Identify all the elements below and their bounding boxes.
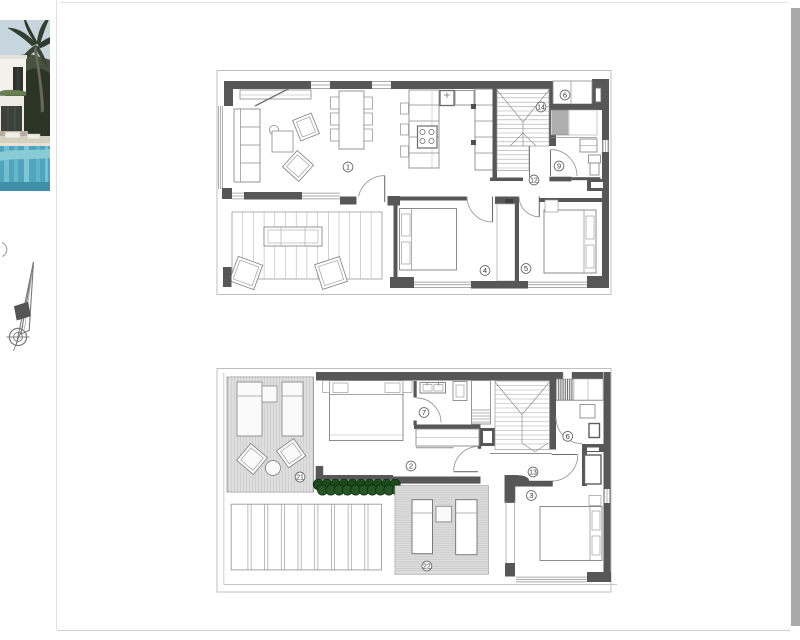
svg-text:4: 4: [483, 266, 487, 275]
svg-text:2: 2: [409, 462, 413, 471]
svg-text:3: 3: [529, 491, 533, 500]
svg-text:5: 5: [524, 264, 528, 273]
svg-text:21: 21: [296, 475, 304, 482]
svg-text:6: 6: [566, 432, 570, 441]
svg-text:22: 22: [423, 564, 431, 571]
svg-text:1: 1: [346, 163, 350, 172]
svg-text:6: 6: [563, 91, 567, 100]
svg-text:9: 9: [557, 162, 561, 171]
svg-text:12: 12: [530, 178, 538, 185]
svg-text:14: 14: [537, 105, 545, 112]
svg-text:13: 13: [529, 470, 537, 477]
svg-text:7: 7: [422, 408, 426, 417]
